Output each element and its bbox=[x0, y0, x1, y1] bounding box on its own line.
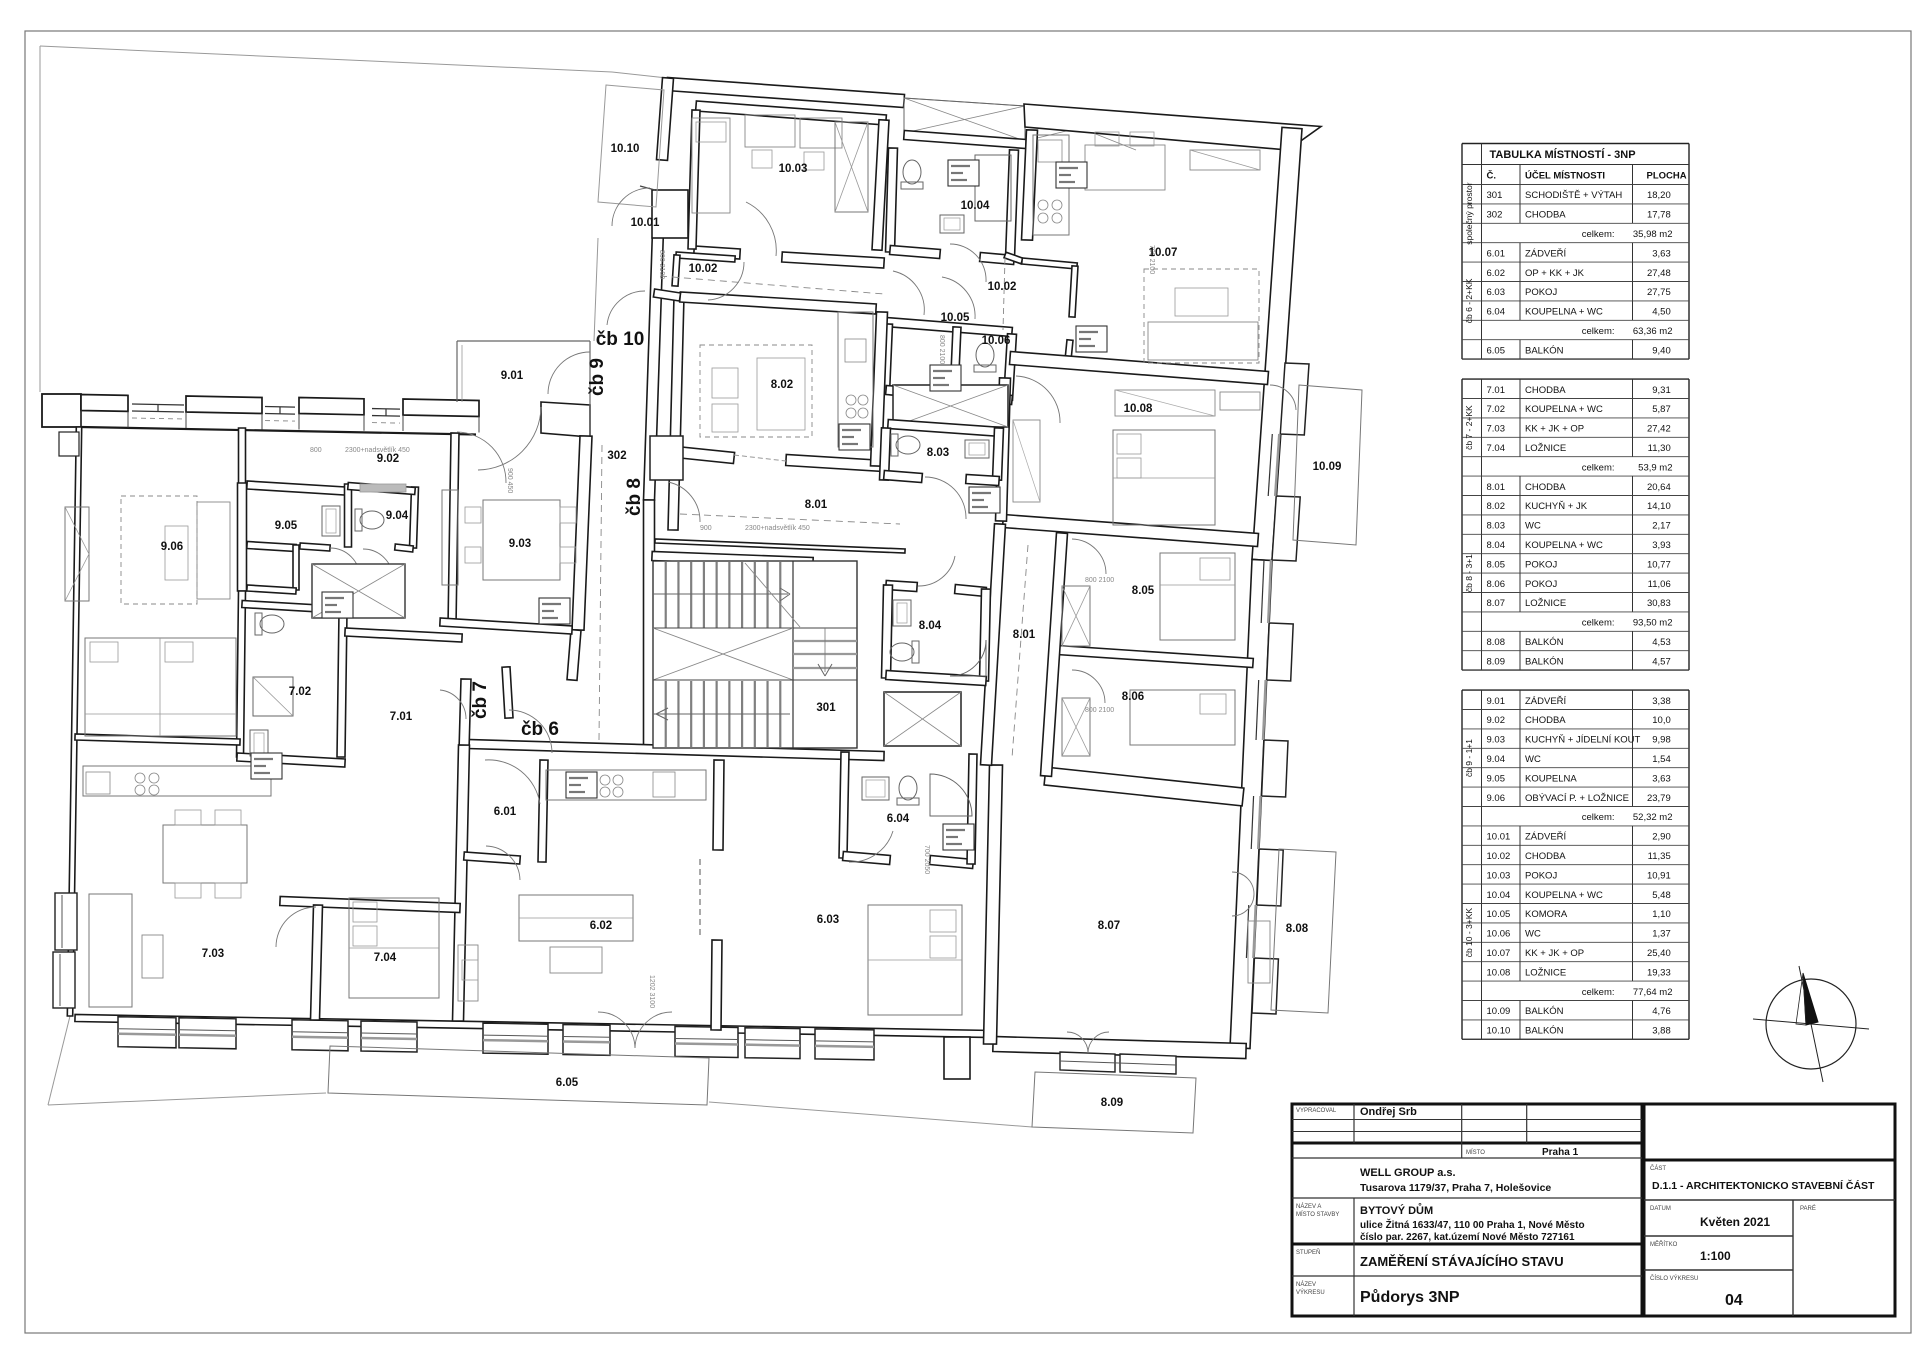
svg-text:2,17: 2,17 bbox=[1652, 521, 1671, 532]
svg-text:PLOCHA: PLOCHA bbox=[1647, 171, 1687, 182]
svg-text:BALKÓN: BALKÓN bbox=[1525, 637, 1564, 648]
svg-text:BALKÓN: BALKÓN bbox=[1525, 1006, 1564, 1017]
svg-text:53,9 m2: 53,9 m2 bbox=[1638, 462, 1672, 473]
svg-text:4,57: 4,57 bbox=[1652, 656, 1671, 667]
svg-text:WC: WC bbox=[1525, 929, 1541, 940]
svg-text:1,54: 1,54 bbox=[1652, 754, 1671, 765]
svg-text:1202 3100: 1202 3100 bbox=[648, 975, 655, 1008]
svg-text:CHODBA: CHODBA bbox=[1525, 210, 1566, 221]
svg-text:20,64: 20,64 bbox=[1647, 482, 1671, 493]
svg-text:9.02: 9.02 bbox=[1487, 715, 1506, 726]
svg-text:ZAMĚŘENÍ STÁVAJÍCÍHO STAVU: ZAMĚŘENÍ STÁVAJÍCÍHO STAVU bbox=[1360, 1254, 1564, 1269]
svg-text:10.08: 10.08 bbox=[1124, 403, 1153, 415]
svg-text:BALKÓN: BALKÓN bbox=[1525, 345, 1564, 356]
svg-text:7.02: 7.02 bbox=[289, 686, 311, 698]
svg-text:04: 04 bbox=[1725, 1292, 1743, 1309]
svg-text:4,53: 4,53 bbox=[1652, 637, 1671, 648]
svg-text:LOŽNICE: LOŽNICE bbox=[1525, 443, 1566, 454]
svg-text:10.05: 10.05 bbox=[941, 312, 970, 324]
svg-text:KK + JK + OP: KK + JK + OP bbox=[1525, 424, 1584, 435]
svg-text:10.01: 10.01 bbox=[631, 217, 660, 229]
svg-text:CHODBA: CHODBA bbox=[1525, 715, 1566, 726]
svg-text:3,93: 3,93 bbox=[1652, 540, 1671, 551]
svg-text:9,40: 9,40 bbox=[1652, 345, 1671, 356]
svg-text:čb 8: čb 8 bbox=[624, 478, 645, 516]
svg-text:BYTOVÝ DŮM: BYTOVÝ DŮM bbox=[1360, 1203, 1433, 1217]
svg-text:6.05: 6.05 bbox=[1487, 345, 1506, 356]
svg-text:Půdorys 3NP: Půdorys 3NP bbox=[1360, 1289, 1460, 1306]
svg-text:10.01: 10.01 bbox=[1487, 832, 1511, 843]
svg-text:93,50 m2: 93,50 m2 bbox=[1633, 618, 1673, 629]
svg-text:8.04: 8.04 bbox=[919, 620, 942, 632]
svg-text:7.04: 7.04 bbox=[374, 952, 397, 964]
svg-text:čb 9 - 1+1: čb 9 - 1+1 bbox=[1464, 739, 1474, 777]
svg-text:9,31: 9,31 bbox=[1652, 385, 1671, 396]
svg-text:10,0: 10,0 bbox=[1652, 715, 1671, 726]
svg-text:800 2100: 800 2100 bbox=[1085, 577, 1114, 584]
svg-text:10.02: 10.02 bbox=[689, 263, 718, 275]
svg-text:301: 301 bbox=[816, 702, 836, 714]
svg-text:číslo par. 2267, kat.území Nov: číslo par. 2267, kat.území Nové Město 72… bbox=[1360, 1232, 1575, 1243]
svg-text:10.07: 10.07 bbox=[1487, 948, 1511, 959]
svg-text:10.02: 10.02 bbox=[988, 281, 1017, 293]
svg-text:900: 900 bbox=[700, 525, 712, 532]
svg-text:Praha 1: Praha 1 bbox=[1542, 1147, 1579, 1158]
svg-text:800: 800 bbox=[310, 447, 322, 454]
svg-text:ZÁDVEŘÍ: ZÁDVEŘÍ bbox=[1525, 696, 1567, 707]
svg-text:6.03: 6.03 bbox=[817, 914, 839, 926]
svg-text:DATUM: DATUM bbox=[1650, 1206, 1671, 1212]
svg-text:6.05: 6.05 bbox=[556, 1077, 579, 1089]
svg-text:KOUPELNA + WC: KOUPELNA + WC bbox=[1525, 307, 1603, 318]
svg-text:POKOJ: POKOJ bbox=[1525, 559, 1557, 570]
svg-text:celkem:: celkem: bbox=[1582, 987, 1615, 998]
svg-text:LOŽNICE: LOŽNICE bbox=[1525, 967, 1566, 978]
svg-text:8.03: 8.03 bbox=[927, 447, 949, 459]
svg-text:CHODBA: CHODBA bbox=[1525, 851, 1566, 862]
svg-text:KOUPELNA + WC: KOUPELNA + WC bbox=[1525, 404, 1603, 415]
svg-text:6.01: 6.01 bbox=[494, 806, 517, 818]
svg-text:25,40: 25,40 bbox=[1647, 948, 1671, 959]
svg-text:8.02: 8.02 bbox=[1487, 501, 1506, 512]
svg-text:Květen 2021: Květen 2021 bbox=[1700, 1215, 1770, 1229]
svg-text:WELL GROUP a.s.: WELL GROUP a.s. bbox=[1360, 1167, 1456, 1179]
svg-text:10,77: 10,77 bbox=[1647, 559, 1671, 570]
svg-text:1,10: 1,10 bbox=[1652, 909, 1671, 920]
svg-text:27,48: 27,48 bbox=[1647, 268, 1671, 279]
svg-text:KOUPELNA + WC: KOUPELNA + WC bbox=[1525, 540, 1603, 551]
svg-text:9.03: 9.03 bbox=[509, 538, 531, 550]
svg-text:9.04: 9.04 bbox=[1487, 754, 1506, 765]
svg-text:1:100: 1:100 bbox=[1700, 1249, 1731, 1263]
svg-text:17,78: 17,78 bbox=[1647, 210, 1671, 221]
svg-text:KUCHYŇ + JK: KUCHYŇ + JK bbox=[1525, 501, 1588, 512]
svg-text:MĚŘÍTKO: MĚŘÍTKO bbox=[1650, 1240, 1678, 1248]
svg-text:NÁZEV: NÁZEV bbox=[1296, 1281, 1316, 1288]
svg-text:KOUPELNA + WC: KOUPELNA + WC bbox=[1525, 890, 1603, 901]
svg-text:19,33: 19,33 bbox=[1647, 967, 1671, 978]
svg-text:6.03: 6.03 bbox=[1487, 287, 1506, 298]
svg-text:VYPRACOVAL: VYPRACOVAL bbox=[1296, 1108, 1337, 1114]
svg-text:10.08: 10.08 bbox=[1487, 967, 1511, 978]
svg-text:čb 7: čb 7 bbox=[470, 681, 491, 719]
svg-text:2300+nadsvětlík 450: 2300+nadsvětlík 450 bbox=[745, 525, 810, 532]
svg-text:čb 6 - 2+KK: čb 6 - 2+KK bbox=[1464, 278, 1474, 323]
svg-text:2,90: 2,90 bbox=[1652, 832, 1671, 843]
svg-text:18,20: 18,20 bbox=[1647, 190, 1671, 201]
svg-text:ÚČEL MÍSTNOSTI: ÚČEL MÍSTNOSTI bbox=[1525, 170, 1605, 182]
svg-text:10.03: 10.03 bbox=[1487, 870, 1511, 881]
svg-text:8.01: 8.01 bbox=[1487, 482, 1506, 493]
svg-text:čb 7 - 2+KK: čb 7 - 2+KK bbox=[1464, 405, 1474, 450]
svg-text:27,42: 27,42 bbox=[1647, 424, 1671, 435]
svg-text:MÍSTO: MÍSTO bbox=[1466, 1149, 1485, 1156]
svg-text:celkem:: celkem: bbox=[1582, 812, 1615, 823]
svg-text:10.06: 10.06 bbox=[982, 335, 1011, 347]
svg-text:čb 9: čb 9 bbox=[587, 358, 608, 396]
svg-text:ZÁDVEŘÍ: ZÁDVEŘÍ bbox=[1525, 248, 1567, 259]
svg-text:6.02: 6.02 bbox=[1487, 268, 1506, 279]
svg-text:10.09: 10.09 bbox=[1487, 1006, 1511, 1017]
svg-text:11,30: 11,30 bbox=[1648, 443, 1671, 454]
svg-text:D.1.1 - ARCHITEKTONICKO STAVEB: D.1.1 - ARCHITEKTONICKO STAVEBNÍ ČÁST bbox=[1652, 1179, 1875, 1192]
svg-text:7.01: 7.01 bbox=[1487, 385, 1506, 396]
svg-text:8.03: 8.03 bbox=[1487, 521, 1506, 532]
svg-text:KUCHYŇ + JÍDELNÍ KOUT: KUCHYŇ + JÍDELNÍ KOUT bbox=[1525, 735, 1641, 746]
svg-text:celkem:: celkem: bbox=[1582, 229, 1615, 240]
svg-text:5,48: 5,48 bbox=[1652, 890, 1671, 901]
svg-text:ulice Žitná 1633/47, 110 00 P: ulice Žitná 1633/47, 110 00 Praha 1, Nov… bbox=[1360, 1218, 1585, 1231]
svg-text:10,91: 10,91 bbox=[1647, 870, 1671, 881]
svg-text:9.01: 9.01 bbox=[501, 370, 524, 382]
svg-text:900 450: 900 450 bbox=[506, 468, 513, 493]
svg-text:1,37: 1,37 bbox=[1652, 929, 1671, 940]
svg-text:7.02: 7.02 bbox=[1487, 404, 1506, 415]
svg-text:10.02: 10.02 bbox=[1487, 851, 1511, 862]
svg-text:celkem:: celkem: bbox=[1582, 326, 1615, 337]
svg-text:11,35: 11,35 bbox=[1648, 851, 1671, 862]
svg-text:Č.: Č. bbox=[1487, 170, 1497, 182]
svg-text:9.02: 9.02 bbox=[377, 453, 399, 465]
svg-text:8.04: 8.04 bbox=[1487, 540, 1506, 551]
svg-text:celkem:: celkem: bbox=[1582, 462, 1615, 473]
svg-text:8.02: 8.02 bbox=[771, 379, 793, 391]
svg-text:KK + JK + OP: KK + JK + OP bbox=[1525, 948, 1584, 959]
svg-text:6.04: 6.04 bbox=[887, 813, 910, 825]
svg-text:MÍSTO STAVBY: MÍSTO STAVBY bbox=[1296, 1211, 1339, 1218]
svg-text:10.06: 10.06 bbox=[1487, 929, 1511, 940]
svg-text:8.06: 8.06 bbox=[1487, 579, 1506, 590]
svg-text:POKOJ: POKOJ bbox=[1525, 287, 1557, 298]
svg-text:čb 8 - 3+1: čb 8 - 3+1 bbox=[1464, 554, 1474, 592]
svg-text:8.05: 8.05 bbox=[1132, 585, 1155, 597]
svg-text:Tusarova 1179/37, Praha 7, Hol: Tusarova 1179/37, Praha 7, Holešovice bbox=[1360, 1182, 1551, 1194]
svg-text:ZÁDVEŘÍ: ZÁDVEŘÍ bbox=[1525, 832, 1567, 843]
svg-text:800 2100: 800 2100 bbox=[658, 250, 665, 279]
svg-text:WC: WC bbox=[1525, 754, 1541, 765]
svg-text:9.04: 9.04 bbox=[386, 510, 409, 522]
svg-text:společný prostor: společný prostor bbox=[1464, 182, 1474, 245]
svg-text:800 2100: 800 2100 bbox=[938, 335, 945, 364]
svg-text:10.04: 10.04 bbox=[961, 200, 990, 212]
svg-text:9.05: 9.05 bbox=[1487, 773, 1506, 784]
svg-text:6.04: 6.04 bbox=[1487, 307, 1506, 318]
svg-text:CHODBA: CHODBA bbox=[1525, 385, 1566, 396]
svg-text:OBÝVACÍ P. + LOŽNICE: OBÝVACÍ P. + LOŽNICE bbox=[1525, 793, 1629, 804]
svg-text:14,10: 14,10 bbox=[1647, 501, 1671, 512]
svg-text:9.06: 9.06 bbox=[161, 541, 183, 553]
svg-text:23,79: 23,79 bbox=[1647, 793, 1671, 804]
svg-text:8.08: 8.08 bbox=[1286, 923, 1309, 935]
svg-text:KOMORA: KOMORA bbox=[1525, 909, 1568, 920]
svg-text:ČÍSLO VÝKRESU: ČÍSLO VÝKRESU bbox=[1650, 1275, 1698, 1282]
svg-text:8.01: 8.01 bbox=[805, 499, 828, 511]
svg-text:7.03: 7.03 bbox=[202, 948, 224, 960]
svg-text:6.02: 6.02 bbox=[590, 920, 612, 932]
svg-text:8.09: 8.09 bbox=[1487, 656, 1506, 667]
svg-text:8.06: 8.06 bbox=[1122, 691, 1144, 703]
svg-text:52,32 m2: 52,32 m2 bbox=[1633, 812, 1673, 823]
svg-text:302: 302 bbox=[607, 450, 626, 462]
svg-text:35,98 m2: 35,98 m2 bbox=[1633, 229, 1673, 240]
svg-text:9.03: 9.03 bbox=[1487, 735, 1506, 746]
svg-text:9.01: 9.01 bbox=[1487, 696, 1506, 707]
svg-text:POKOJ: POKOJ bbox=[1525, 579, 1557, 590]
svg-text:8.07: 8.07 bbox=[1098, 920, 1120, 932]
svg-text:800 2100: 800 2100 bbox=[1085, 707, 1114, 714]
svg-text:7.04: 7.04 bbox=[1487, 443, 1506, 454]
svg-text:301: 301 bbox=[1487, 190, 1503, 201]
svg-text:8.01: 8.01 bbox=[1013, 629, 1036, 641]
svg-text:VÝKRESU: VÝKRESU bbox=[1296, 1289, 1325, 1296]
svg-text:3,63: 3,63 bbox=[1652, 248, 1671, 259]
svg-text:3,63: 3,63 bbox=[1652, 773, 1671, 784]
svg-text:9,98: 9,98 bbox=[1652, 735, 1671, 746]
svg-text:10.03: 10.03 bbox=[779, 163, 808, 175]
svg-text:4,50: 4,50 bbox=[1652, 307, 1671, 318]
svg-text:4,76: 4,76 bbox=[1652, 1006, 1671, 1017]
svg-text:8.05: 8.05 bbox=[1487, 559, 1506, 570]
svg-text:10.10: 10.10 bbox=[1487, 1026, 1511, 1037]
svg-text:302: 302 bbox=[1487, 210, 1503, 221]
svg-text:8.07: 8.07 bbox=[1487, 598, 1506, 609]
svg-text:27,75: 27,75 bbox=[1647, 287, 1671, 298]
svg-text:čb 10 - 3+KK: čb 10 - 3+KK bbox=[1464, 908, 1474, 958]
svg-text:7.01: 7.01 bbox=[390, 711, 413, 723]
svg-text:10.05: 10.05 bbox=[1487, 909, 1511, 920]
svg-text:77,64 m2: 77,64 m2 bbox=[1633, 987, 1673, 998]
svg-text:8.09: 8.09 bbox=[1101, 1097, 1123, 1109]
svg-text:BALKÓN: BALKÓN bbox=[1525, 656, 1564, 667]
svg-text:6.01: 6.01 bbox=[1487, 248, 1506, 259]
svg-text:KOUPELNA: KOUPELNA bbox=[1525, 773, 1577, 784]
svg-text:POKOJ: POKOJ bbox=[1525, 870, 1557, 881]
svg-text:ČÁST: ČÁST bbox=[1650, 1165, 1666, 1172]
svg-text:3,88: 3,88 bbox=[1652, 1026, 1671, 1037]
svg-text:čb 6: čb 6 bbox=[521, 719, 559, 740]
svg-text:SCHODIŠTĚ + VÝTAH: SCHODIŠTĚ + VÝTAH bbox=[1525, 190, 1622, 201]
svg-text:9.05: 9.05 bbox=[275, 520, 298, 532]
svg-text:10.04: 10.04 bbox=[1487, 890, 1511, 901]
svg-text:10.10: 10.10 bbox=[611, 143, 640, 155]
svg-text:PARÉ: PARÉ bbox=[1800, 1205, 1816, 1212]
svg-text:CHODBA: CHODBA bbox=[1525, 482, 1566, 493]
svg-text:TABULKA MÍSTNOSTÍ - 3NP: TABULKA MÍSTNOSTÍ - 3NP bbox=[1490, 148, 1636, 161]
svg-text:celkem:: celkem: bbox=[1582, 618, 1615, 629]
svg-text:3,38: 3,38 bbox=[1652, 696, 1671, 707]
svg-text:čb 10: čb 10 bbox=[596, 329, 645, 350]
svg-text:700 2050: 700 2050 bbox=[923, 845, 930, 874]
svg-text:OP + KK + JK: OP + KK + JK bbox=[1525, 268, 1585, 279]
svg-text:WC: WC bbox=[1525, 521, 1541, 532]
svg-text:63,36 m2: 63,36 m2 bbox=[1633, 326, 1673, 337]
svg-text:STUPEŇ: STUPEŇ bbox=[1296, 1249, 1320, 1256]
svg-text:7.03: 7.03 bbox=[1487, 424, 1506, 435]
svg-text:9.06: 9.06 bbox=[1487, 793, 1506, 804]
svg-text:5,87: 5,87 bbox=[1652, 404, 1671, 415]
svg-text:10.09: 10.09 bbox=[1313, 461, 1342, 473]
svg-text:BALKÓN: BALKÓN bbox=[1525, 1026, 1564, 1037]
svg-text:NÁZEV A: NÁZEV A bbox=[1296, 1203, 1321, 1210]
svg-text:Ondřej Srb: Ondřej Srb bbox=[1360, 1106, 1417, 1118]
svg-text:30,83: 30,83 bbox=[1647, 598, 1671, 609]
svg-text:11,06: 11,06 bbox=[1648, 579, 1671, 590]
svg-text:8.08: 8.08 bbox=[1487, 637, 1506, 648]
svg-text:LOŽNICE: LOŽNICE bbox=[1525, 598, 1566, 609]
svg-text:10.07: 10.07 bbox=[1149, 247, 1178, 259]
